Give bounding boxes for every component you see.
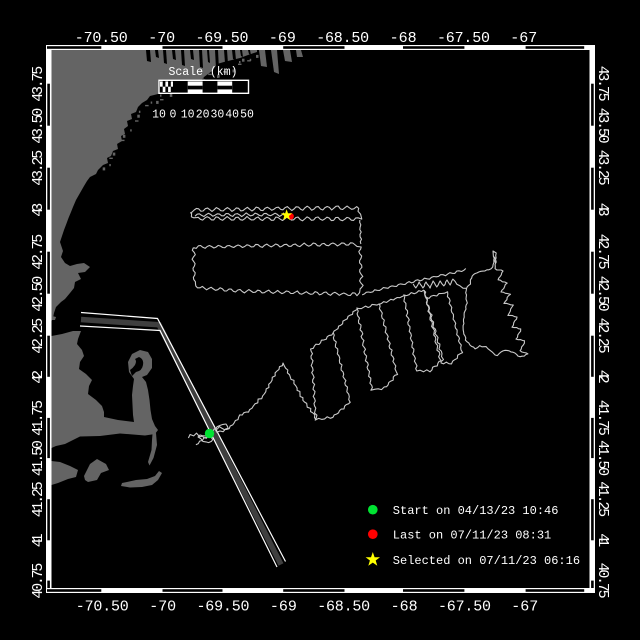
svg-text:40: 40 [225,109,239,122]
svg-text:42.50: 42.50 [30,276,47,312]
svg-text:40.75: 40.75 [594,563,611,599]
svg-text:10: 10 [181,109,195,122]
svg-text:-70: -70 [148,30,175,47]
svg-text:-70.50: -70.50 [75,30,128,47]
svg-text:-67.50: -67.50 [437,30,490,47]
svg-text:42.75: 42.75 [30,234,47,270]
svg-text:Selected on 07/11/23 06:16: Selected on 07/11/23 06:16 [393,554,580,568]
svg-text:41.25: 41.25 [30,481,47,517]
svg-text:Scale (km): Scale (km) [168,66,237,79]
svg-text:41.25: 41.25 [594,481,611,517]
svg-text:-67: -67 [511,599,538,616]
svg-text:43: 43 [594,203,611,217]
svg-text:41.50: 41.50 [594,440,611,476]
svg-text:-70: -70 [149,599,176,616]
svg-text:-68: -68 [391,599,418,616]
svg-text:-69.50: -69.50 [197,599,250,616]
svg-text:-69.50: -69.50 [196,30,249,47]
svg-text:42.25: 42.25 [594,318,611,354]
svg-text:41.75: 41.75 [30,400,47,436]
svg-text:43: 43 [30,203,47,217]
svg-text:Last on 07/11/23 08:31: Last on 07/11/23 08:31 [393,529,551,543]
svg-text:41.50: 41.50 [30,440,47,476]
svg-text:-67.50: -67.50 [438,599,491,616]
svg-text:43.50: 43.50 [594,108,611,144]
svg-text:42.25: 42.25 [30,318,47,354]
svg-text:50: 50 [240,109,254,122]
svg-text:42: 42 [30,370,47,384]
svg-text:-68.50: -68.50 [316,30,369,47]
svg-text:43.25: 43.25 [30,150,47,186]
svg-text:Start on 04/13/23 10:46: Start on 04/13/23 10:46 [393,504,559,518]
svg-text:-67: -67 [510,30,537,47]
svg-text:10: 10 [152,109,166,122]
svg-text:-68.50: -68.50 [317,599,370,616]
svg-text:20: 20 [196,109,210,122]
svg-text:-70.50: -70.50 [76,599,129,616]
svg-text:-68: -68 [390,30,417,47]
svg-text:43.25: 43.25 [594,150,611,186]
svg-text:41.75: 41.75 [594,400,611,436]
svg-text:41: 41 [594,533,611,547]
svg-text:42.50: 42.50 [594,276,611,312]
svg-text:43.75: 43.75 [30,66,47,102]
svg-text:41: 41 [30,533,47,547]
svg-text:30: 30 [210,109,224,122]
svg-text:43.75: 43.75 [594,66,611,102]
svg-text:0: 0 [170,109,177,122]
svg-text:42.75: 42.75 [594,234,611,270]
svg-text:-69: -69 [270,599,297,616]
svg-text:-69: -69 [269,30,296,47]
svg-text:42: 42 [594,370,611,384]
svg-text:43.50: 43.50 [30,108,47,144]
svg-text:40.75: 40.75 [30,563,47,599]
